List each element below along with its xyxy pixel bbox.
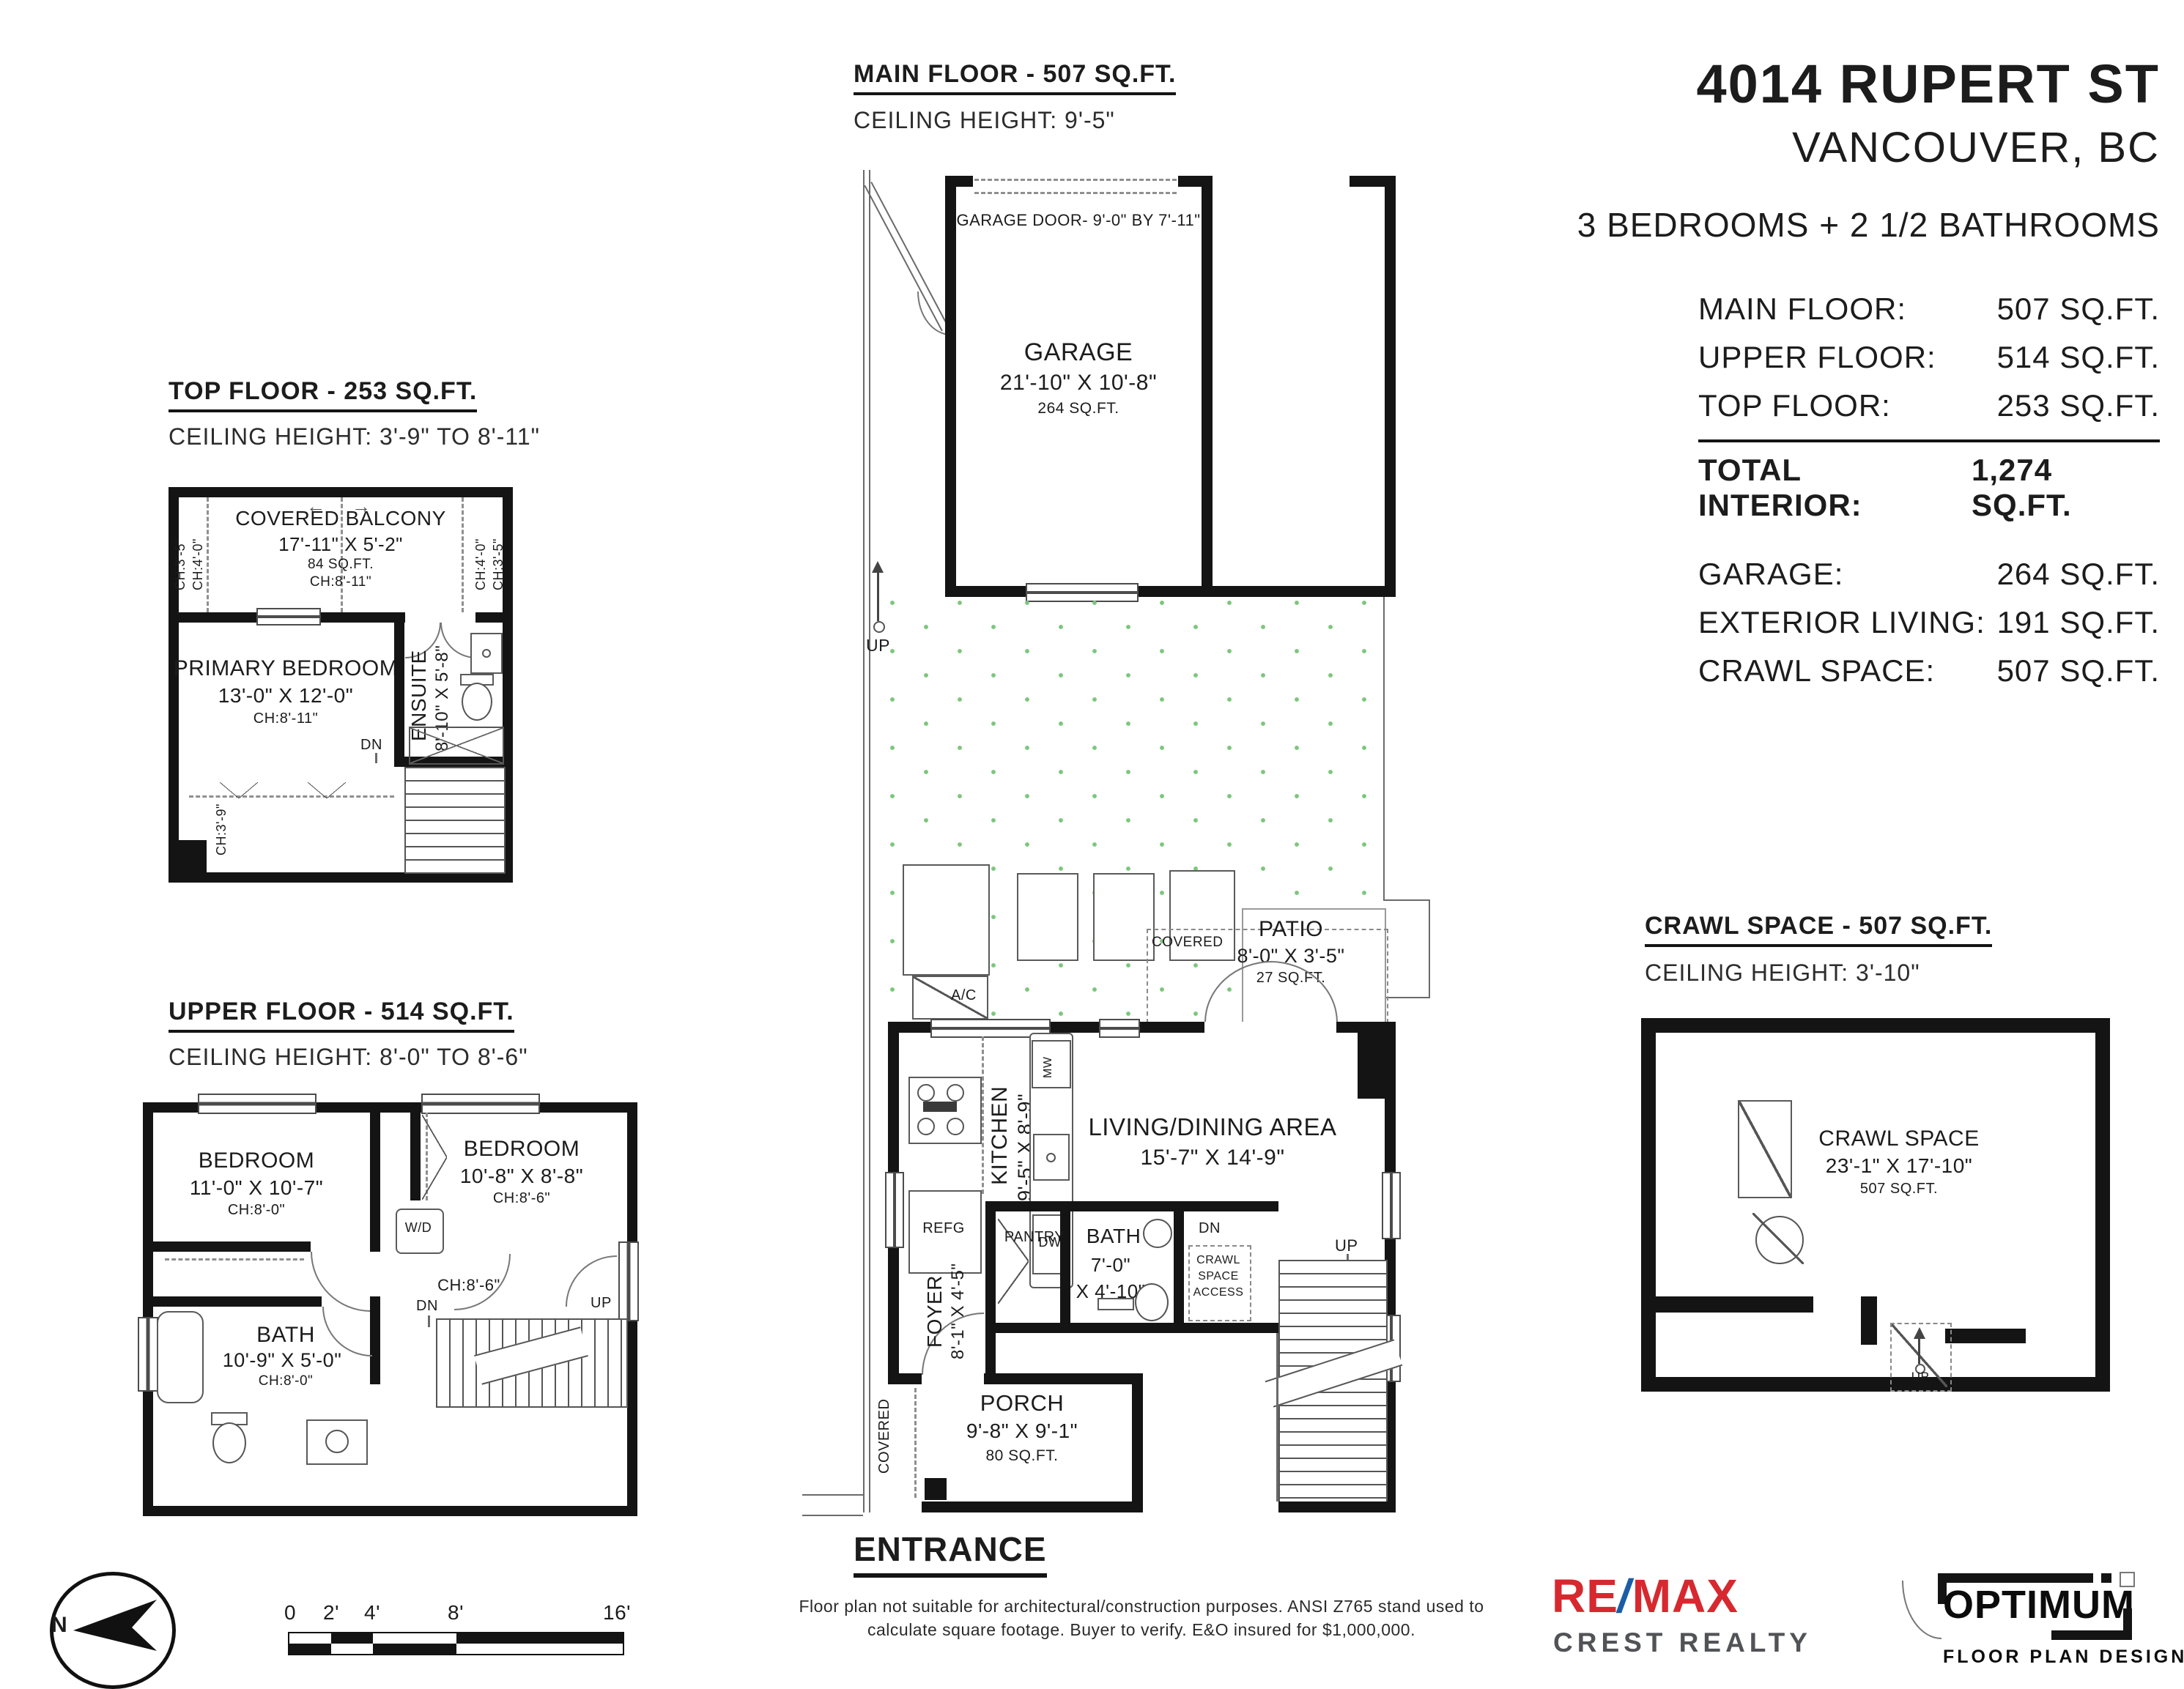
table-row: MAIN FLOOR:507 SQ.FT.: [1698, 292, 2160, 327]
dn-label: DN: [360, 737, 382, 754]
wall-segment: [1641, 1018, 2110, 1033]
wall-segment: [143, 1506, 637, 1516]
ch-label: CH:4'-0": [190, 538, 206, 590]
porch-covered-label: COVERED: [876, 1399, 893, 1474]
yard-edge-line: [1383, 899, 1430, 901]
crawl-space-title: CRAWL SPACE - 507 SQ.FT.: [1645, 912, 1992, 947]
up-yard-label: UP: [866, 636, 890, 656]
remax-re: RE: [1552, 1570, 1618, 1622]
ch-zone-dashed-line: [207, 497, 209, 612]
wall-segment: [1641, 1018, 1656, 1392]
table-row: UPPER FLOOR:514 SQ.FT.: [1698, 340, 2160, 375]
bath-label: BATH: [1087, 1225, 1141, 1248]
scale-segment: [456, 1633, 623, 1644]
dn-label: DN: [416, 1298, 438, 1315]
crawl-space-ceiling: CEILING HEIGHT: 3'-10": [1645, 959, 1920, 987]
dn-label: DN: [1199, 1220, 1221, 1237]
crawl-access-label: CRAWL: [1196, 1254, 1240, 1267]
patio-covered-label: COVERED: [1152, 935, 1223, 951]
living-dining-dims: 15'-7" X 14'-9": [1140, 1146, 1284, 1170]
crawl-access-label: SPACE: [1198, 1270, 1239, 1283]
bath-ch: CH:8'-0": [259, 1373, 314, 1389]
row-label: GARAGE:: [1698, 557, 1843, 592]
porch-wall: [1132, 1384, 1143, 1512]
bath-label: BATH: [256, 1323, 315, 1348]
ch-label: CH:3'-5": [173, 538, 188, 590]
bifold-door-icon: [422, 1115, 447, 1157]
row-value: 191 SQ.FT.: [1997, 605, 2160, 640]
row-label: TOP FLOOR:: [1698, 388, 1891, 423]
window-icon: [1099, 1019, 1140, 1038]
foyer-dims: 8'-1" X 4'-5": [948, 1263, 969, 1359]
crawl-access-label: ACCESS: [1193, 1286, 1244, 1299]
washer-dryer-label: W/D: [405, 1220, 432, 1236]
bath-dims-1: 7'-0": [1091, 1254, 1130, 1277]
interior-wall: [985, 1201, 996, 1373]
balcony-door-opening: [405, 612, 475, 623]
roofline-mark: [220, 782, 239, 798]
counter-dashed-line: [982, 1036, 984, 1194]
up-label: UP: [591, 1295, 612, 1312]
row-label: MAIN FLOOR:: [1698, 292, 1906, 327]
row-value: 253 SQ.FT.: [1997, 388, 2160, 423]
tank-slash: [1752, 1213, 1804, 1264]
optimum-logo-label: OPTIMUM: [1943, 1582, 2135, 1627]
page-subtitle-city: VANCOUVER, BC: [1792, 123, 2160, 172]
balcony-area: 84 SQ.FT.: [308, 557, 374, 573]
burner-icon: [947, 1084, 964, 1102]
window-icon: [138, 1317, 158, 1392]
neighbor-wall: [1385, 176, 1396, 597]
primary-bedroom-label: PRIMARY BEDROOM: [174, 656, 398, 681]
north-arrow-icon: [70, 1595, 162, 1657]
wall-chunk: [1358, 1022, 1396, 1099]
furnace-icon: [1738, 1100, 1792, 1198]
wall-segment: [169, 872, 513, 883]
primary-bedroom-ch: CH:8'-11": [253, 710, 318, 727]
bifold-door-icon: [422, 1157, 447, 1200]
stair-wing-line: [1276, 1333, 1278, 1501]
interior-wall: [1861, 1296, 1877, 1345]
dashed-line: [165, 1258, 304, 1261]
window-icon: [618, 1241, 639, 1321]
up-label: UP: [1335, 1236, 1358, 1255]
neighbor-wall-stub: [1350, 176, 1396, 187]
yard-edge-line: [1429, 899, 1430, 998]
interior-wall: [1945, 1329, 2026, 1343]
yard-edge-line: [1385, 997, 1430, 998]
sidewalk-line: [802, 1494, 863, 1496]
porch-dims: 9'-8" X 9'-1": [966, 1419, 1078, 1443]
garage-wall-stub: [1178, 176, 1213, 187]
hall-ch-label: CH:8'-6": [437, 1276, 500, 1295]
table-row: TOP FLOOR:253 SQ.FT.: [1698, 388, 2160, 423]
row-value: 507 SQ.FT.: [1997, 292, 2160, 327]
garage-area: 264 SQ.FT.: [1037, 400, 1119, 417]
porch-label: PORCH: [980, 1390, 1064, 1417]
wall-segment: [1641, 1377, 2110, 1392]
toilet-icon: [462, 683, 492, 721]
yard-edge-line: [1383, 597, 1385, 901]
remax-logo: RE/MAX: [1552, 1569, 1739, 1623]
interior-wall: [1656, 1296, 1813, 1313]
microwave-label: MW: [1042, 1057, 1055, 1078]
main-floor-title: MAIN FLOOR - 507 SQ.FT.: [854, 60, 1176, 95]
interior-wall: [985, 1201, 1278, 1211]
row-label: EXTERIOR LIVING:: [1698, 605, 1985, 640]
table-row: EXTERIOR LIVING:191 SQ.FT.: [1698, 605, 2160, 640]
toilet-icon: [1135, 1283, 1169, 1321]
up-arrow-icon: [872, 561, 884, 573]
porch-post: [925, 1478, 947, 1500]
scale-tick: 2': [323, 1601, 339, 1625]
fence-line: [869, 170, 870, 1512]
up-arrow-line: [877, 573, 879, 621]
garage-wall: [1202, 176, 1213, 597]
top-floor-title: TOP FLOOR - 253 SQ.FT.: [169, 377, 477, 412]
porch-dashed-line: [914, 1388, 917, 1498]
faucet-icon: [482, 649, 491, 658]
scale-segment: [289, 1644, 331, 1654]
floorplan-page: { "header": { "address": "4014 RUPERT ST…: [0, 0, 2184, 1688]
table-rule: [1698, 439, 2160, 442]
ch-label: CH:4'-0": [473, 538, 489, 590]
toilet-icon: [212, 1422, 246, 1463]
row-value: 1,274 SQ.FT.: [1972, 453, 2160, 523]
entrance-label: ENTRANCE: [854, 1529, 1047, 1578]
table-row-total: TOTAL INTERIOR:1,274 SQ.FT.: [1698, 453, 2160, 523]
roofline-mark: [327, 782, 346, 798]
faucet-icon: [1046, 1153, 1056, 1162]
house-wall: [1278, 1501, 1396, 1512]
scale-tick: 16': [603, 1601, 631, 1625]
bedroom1-dims: 11'-0" X 10'-7": [190, 1176, 323, 1200]
porch-wall: [922, 1501, 1143, 1512]
pantry-label: PANTRY: [1004, 1229, 1065, 1246]
garage-dims: 21'-10" X 10'-8": [1000, 371, 1157, 396]
interior-wall: [1174, 1211, 1184, 1333]
roofline-mark: [239, 782, 258, 798]
window-icon: [421, 1094, 540, 1114]
bath-dims: 10'-9" X 5'-0": [223, 1349, 342, 1372]
remax-sub-label: CREST REALTY: [1553, 1627, 1812, 1658]
up-arrow-icon: [1914, 1327, 1925, 1339]
optimum-door-arc-icon: [1902, 1581, 1941, 1639]
fence-line: [863, 170, 865, 1512]
living-dining-label: LIVING/DINING AREA: [1088, 1113, 1336, 1141]
window-icon: [885, 1172, 904, 1248]
upper-floor-title: UPPER FLOOR - 514 SQ.FT.: [169, 998, 514, 1033]
up-arrow-dot: [873, 621, 885, 633]
table-row: GARAGE:264 SQ.FT.: [1698, 557, 2160, 592]
stair-marker: [375, 753, 377, 763]
bed-bath-summary: 3 BEDROOMS + 2 1/2 BATHROOMS: [1577, 205, 2160, 245]
shower-icon: [409, 727, 504, 765]
foyer-label: FOYER: [923, 1275, 947, 1348]
garage-door-dashed-line: [974, 179, 1177, 181]
optimum-frame-bar: [2051, 1630, 2132, 1640]
crawl-room-label: CRAWL SPACE: [1818, 1126, 1979, 1151]
disclaimer-line-1: Floor plan not suitable for architectura…: [799, 1597, 1484, 1616]
bedroom1-ch: CH:8'-0": [228, 1202, 285, 1219]
row-label: CRAWL SPACE:: [1698, 653, 1935, 688]
scale-tick: 4': [364, 1601, 380, 1625]
window-icon: [1382, 1172, 1401, 1239]
wall-notch: [179, 840, 207, 872]
scale-segment: [331, 1633, 373, 1644]
closet-wall: [410, 1113, 421, 1200]
up-label: UP: [1911, 1370, 1930, 1384]
scale-segment: [373, 1644, 456, 1654]
fridge-label: REFG: [922, 1220, 965, 1237]
interior-wall: [985, 1323, 1278, 1333]
up-arrow-line: [1918, 1339, 1920, 1364]
roofline-mark: [308, 782, 327, 798]
garage-door-label: GARAGE DOOR- 9'-0" BY 7'-11": [956, 211, 1200, 230]
porch-area: 80 SQ.FT.: [985, 1447, 1058, 1465]
main-floor-ceiling: CEILING HEIGHT: 9'-5": [854, 107, 1115, 134]
bifold-door-icon: [998, 1261, 1029, 1304]
ac-unit: [912, 976, 988, 1020]
primary-bedroom-dims: 13'-0" X 12'-0": [218, 684, 353, 708]
door-opening: [311, 1241, 370, 1252]
ch-label: CH:3'-5": [491, 538, 506, 590]
wall-segment: [2095, 1018, 2110, 1392]
bathtub-icon: [157, 1311, 204, 1403]
wall-segment: [169, 487, 513, 497]
bath-wall: [153, 1296, 322, 1307]
bedroom2-ch: CH:8'-6": [493, 1190, 550, 1207]
patio-door-opening: [1204, 1022, 1336, 1033]
top-floor-ceiling: CEILING HEIGHT: 3'-9" TO 8'-11": [169, 423, 540, 450]
bedroom2-dims: 10'-8" X 8'-8": [460, 1165, 583, 1188]
crawl-room-dims: 23'-1" X 17'-10": [1826, 1154, 1972, 1178]
upper-floor-ceiling: CEILING HEIGHT: 8'-0" TO 8'-6": [169, 1044, 528, 1071]
window-icon: [198, 1094, 317, 1114]
ch-zone-dashed-line: [462, 497, 464, 612]
bedroom-divider-wall: [370, 1113, 380, 1252]
patio-label: PATIO: [1259, 917, 1323, 942]
bedroom1-label: BEDROOM: [199, 1148, 315, 1173]
yard-top-wall: [1213, 586, 1396, 597]
north-label: N: [51, 1613, 67, 1638]
sink-icon: [325, 1430, 349, 1453]
optimum-frame-bar: [2123, 1608, 2132, 1640]
page-title: 4014 RUPERT ST: [1696, 53, 2160, 115]
remax-max: MAX: [1632, 1570, 1739, 1622]
window-icon: [256, 608, 321, 626]
wall-segment: [143, 1102, 153, 1516]
kitchen-label: KITCHEN: [988, 1086, 1013, 1185]
row-label: TOTAL INTERIOR:: [1698, 453, 1972, 523]
paver-pad: [1017, 873, 1078, 961]
toilet-tank-icon: [1097, 1298, 1134, 1310]
crawl-room-area: 507 SQ.FT.: [1860, 1181, 1938, 1198]
garage-wall: [945, 176, 956, 597]
stove-console: [923, 1102, 957, 1112]
row-value: 507 SQ.FT.: [1997, 653, 2160, 688]
bedroom2-label: BEDROOM: [464, 1137, 580, 1162]
balcony-dims: 17'-11" X 5'-2": [278, 533, 403, 556]
sidewalk-line: [802, 1515, 863, 1516]
optimum-sub-label: FLOOR PLAN DESIGNS: [1943, 1647, 2184, 1668]
row-value: 264 SQ.FT.: [1997, 557, 2160, 592]
burner-icon: [917, 1118, 935, 1135]
hall-wall: [153, 1241, 311, 1252]
paver-pad: [1093, 873, 1155, 961]
scale-tick: 0: [284, 1601, 296, 1625]
balcony-label: COVERED BALCONY: [235, 507, 446, 530]
scale-bar: [288, 1632, 624, 1655]
ac-label: A/C: [951, 987, 977, 1004]
ch-knee-label: CH:3'-9": [214, 803, 229, 855]
table-row: CRAWL SPACE:507 SQ.FT.: [1698, 653, 2160, 688]
stair-marker: [428, 1315, 430, 1327]
front-door-opening: [922, 1373, 984, 1384]
burner-icon: [917, 1084, 935, 1102]
paver-pad: [903, 864, 990, 976]
disclaimer-line-2: calculate square footage. Buyer to verif…: [867, 1620, 1415, 1640]
scale-tick: 8': [448, 1601, 464, 1625]
row-label: UPPER FLOOR:: [1698, 340, 1936, 375]
garage-door-dashed-line: [974, 192, 1177, 194]
burner-icon: [947, 1118, 964, 1135]
garage-label: GARAGE: [1024, 338, 1133, 367]
balcony-ch: CH:8'-11": [310, 574, 371, 590]
sink-icon: [1143, 1219, 1172, 1248]
garage-wall-stub: [945, 176, 973, 187]
staircase: [404, 767, 506, 874]
ensuite-wall: [394, 623, 404, 767]
row-value: 514 SQ.FT.: [1997, 340, 2160, 375]
